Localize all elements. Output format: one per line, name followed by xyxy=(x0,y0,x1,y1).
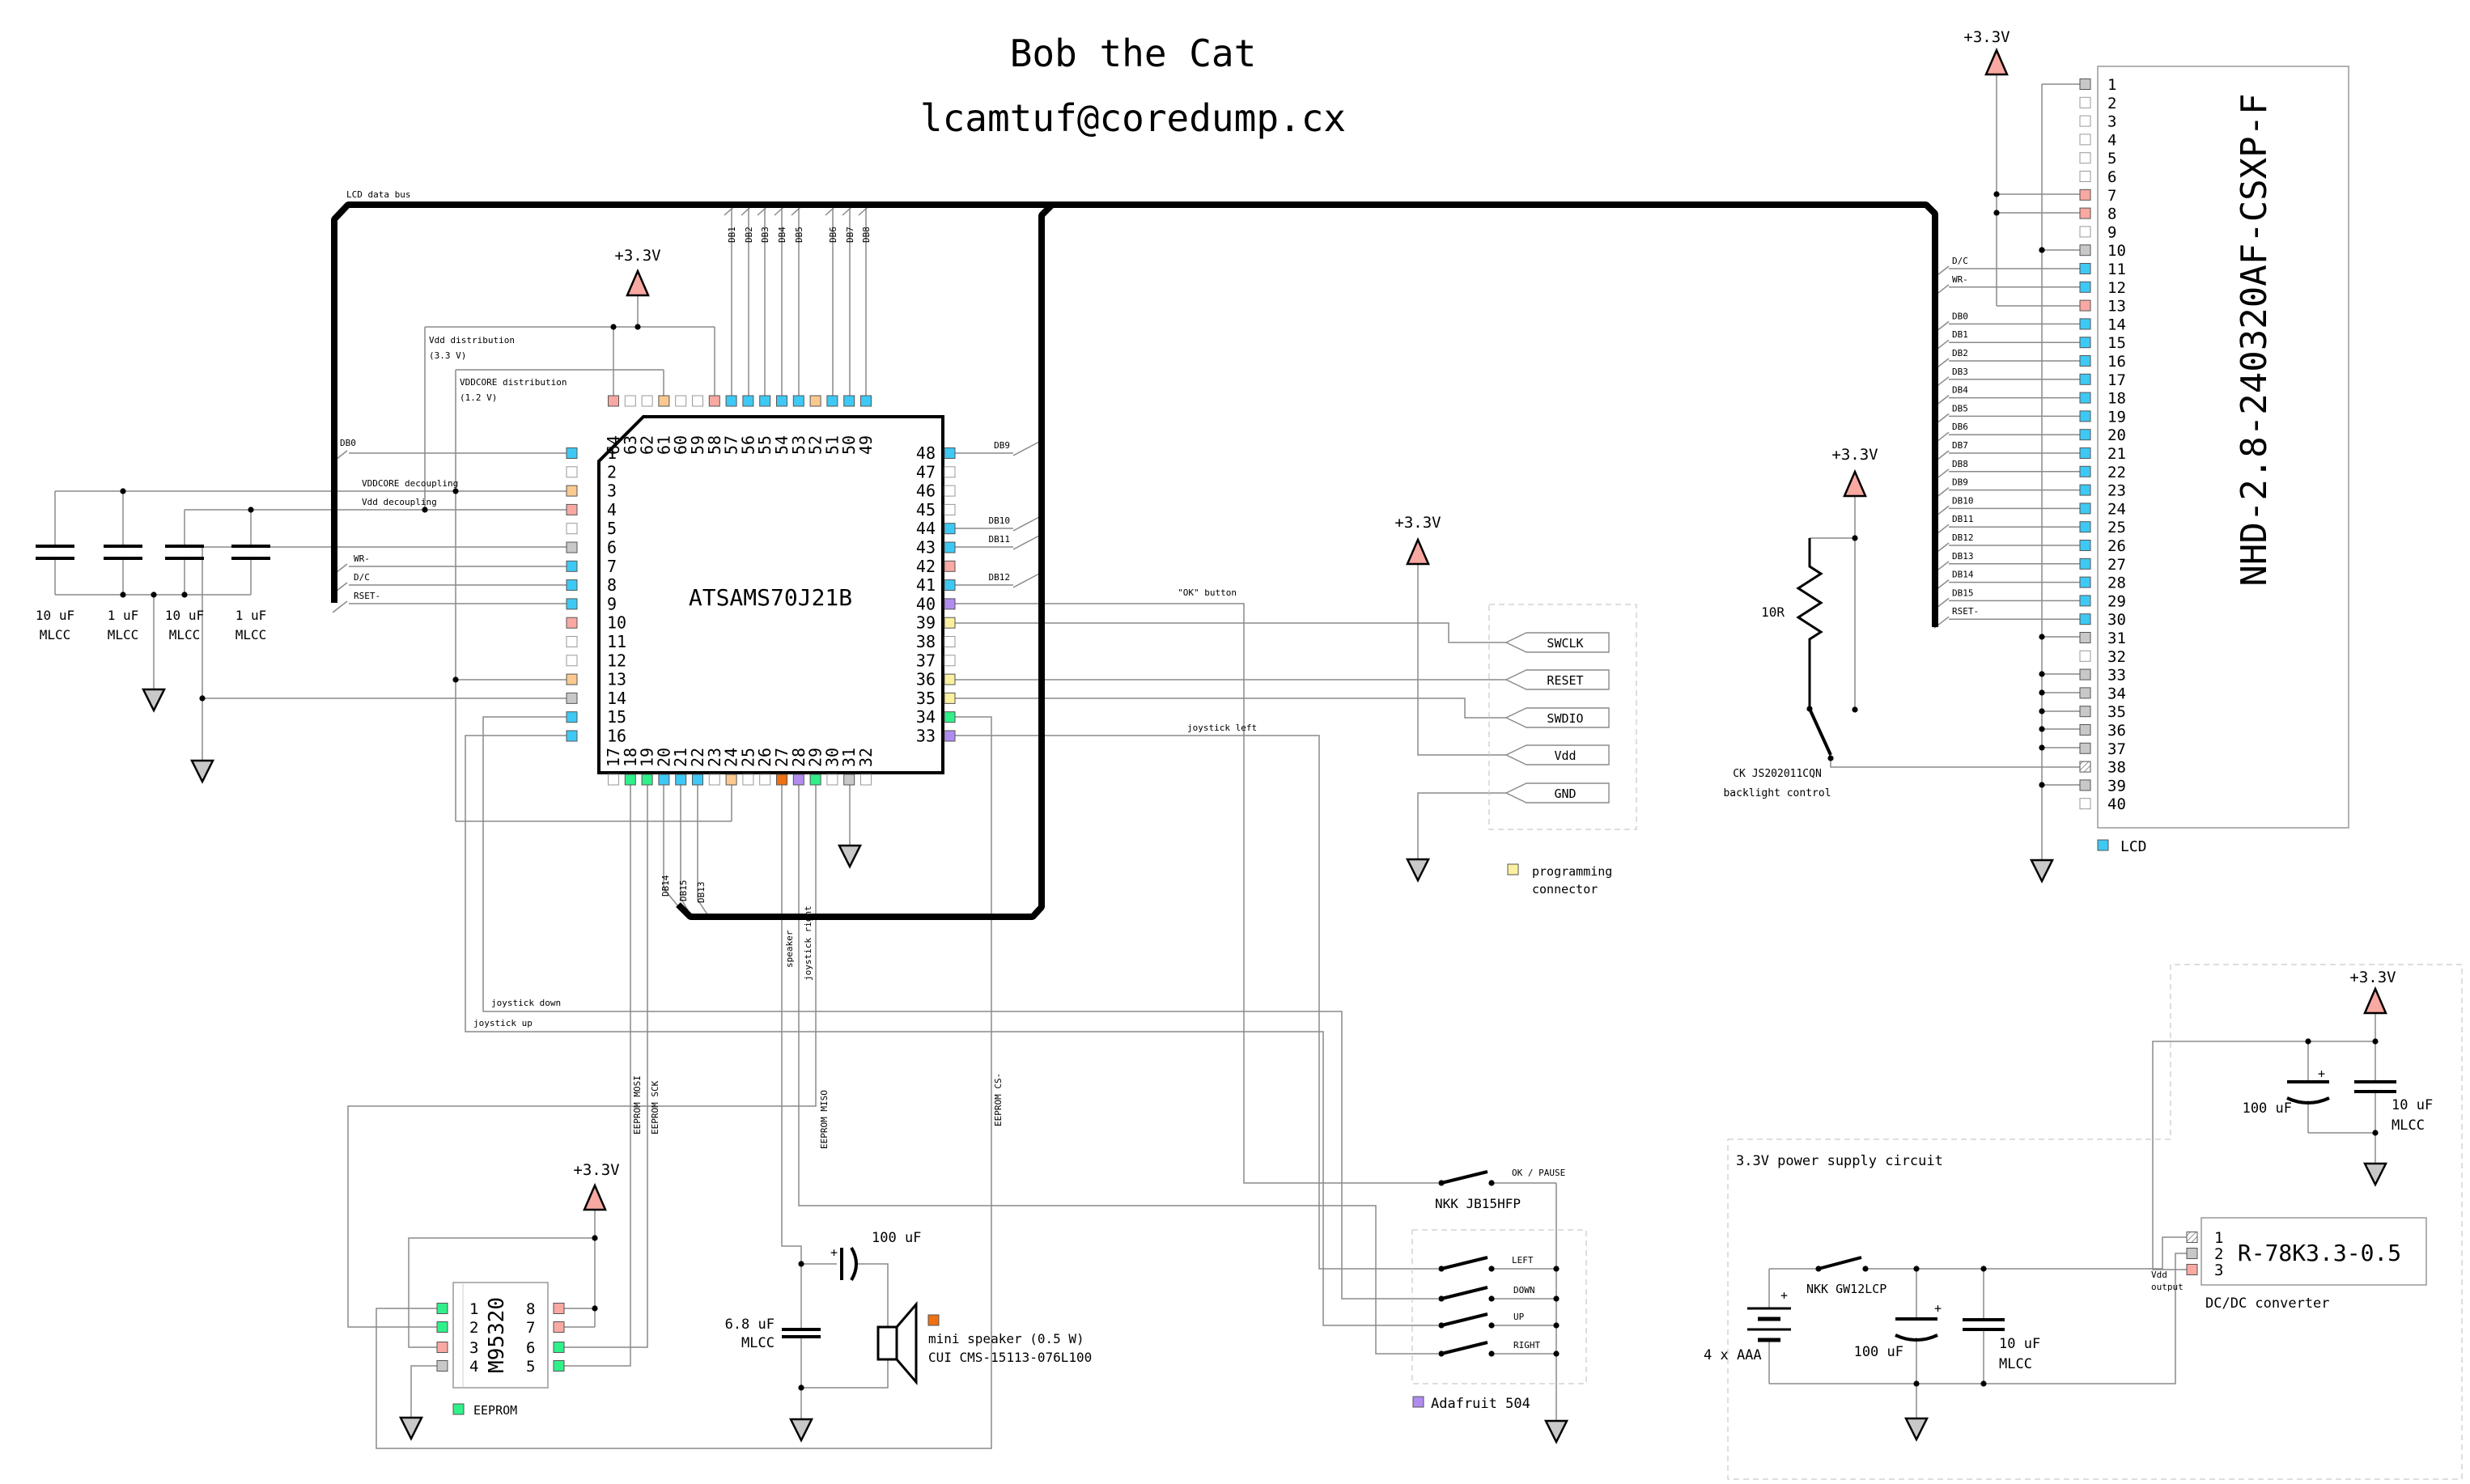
mcu-pin-49 xyxy=(861,396,872,406)
mcu-pin-8 xyxy=(567,580,577,591)
mcu-pin-50 xyxy=(844,396,855,406)
label: + xyxy=(1780,1288,1788,1303)
lcd-pin-number: 32 xyxy=(2107,648,2126,666)
lcd-pin-14 xyxy=(2080,319,2090,329)
db-label: DB12 xyxy=(989,572,1011,583)
lcd-signal-label: DB11 xyxy=(1952,514,1974,524)
label: EEPROM CS- xyxy=(993,1073,1004,1126)
junction-dot xyxy=(2039,744,2044,750)
lcd-signal-label: DB2 xyxy=(1952,348,1968,358)
joystick-legend-swatch xyxy=(1413,1397,1424,1407)
switch-blade xyxy=(1441,1287,1488,1299)
mcu-pin-number: 37 xyxy=(916,651,936,670)
lcd-pin-number: 19 xyxy=(2107,408,2126,426)
db-label: DB3 xyxy=(760,227,770,243)
lcd-pin-number: 17 xyxy=(2107,371,2126,389)
junction-dot xyxy=(634,324,640,329)
junction-dot xyxy=(1913,1380,1919,1386)
lcd-pin-number: 14 xyxy=(2107,316,2126,333)
schematic-page: D/CWR-DB0DB1DB2DB3DB4DB5DB6DB7DB8DB9DB10… xyxy=(0,0,2470,1484)
wire xyxy=(1865,1237,2187,1269)
label: 100 uF xyxy=(1854,1344,1903,1360)
label: RIGHT xyxy=(1513,1340,1540,1350)
ground-icon xyxy=(839,846,860,867)
junction-dot xyxy=(1553,1322,1559,1328)
junction-dot xyxy=(2372,1038,2378,1044)
lcd-pin-number: 26 xyxy=(2107,537,2126,555)
mcu-pin-number: 33 xyxy=(916,727,936,746)
junction-dot xyxy=(610,324,616,329)
lcd-pin-29 xyxy=(2080,596,2090,606)
label: speaker xyxy=(784,930,795,968)
lcd-pin-number: 24 xyxy=(2107,500,2126,518)
dcdc-pin-number: 2 xyxy=(2214,1245,2223,1263)
mcu-pin-57 xyxy=(726,396,736,406)
label: (1.2 V) xyxy=(460,392,497,403)
mcu-pin-number: 8 xyxy=(607,575,617,595)
junction-dot xyxy=(2039,708,2044,714)
lcd-pin-number: 35 xyxy=(2107,703,2126,721)
lcd-pin-number: 8 xyxy=(2107,206,2116,223)
mcu-pin-11 xyxy=(567,637,577,647)
lcd-pin-27 xyxy=(2080,558,2090,569)
power-3v3-icon xyxy=(1986,50,2007,74)
junction-dot xyxy=(592,1305,597,1311)
capacitor-plate-curved xyxy=(851,1248,856,1280)
mcu-pin-number: 14 xyxy=(607,689,626,708)
label: "OK" button xyxy=(1178,587,1237,598)
bus-tap-slash xyxy=(1013,517,1039,531)
cap-label: MLCC xyxy=(40,627,71,642)
mcu-pin-63 xyxy=(625,396,635,406)
lcd-pin-number: 6 xyxy=(2107,168,2116,186)
junction-dot xyxy=(1993,210,1999,215)
label: + xyxy=(830,1245,838,1260)
lcd-pin-number: 13 xyxy=(2107,298,2126,316)
label: 10 uF xyxy=(2391,1097,2433,1113)
lcd-pin-number: 22 xyxy=(2107,464,2126,481)
junction-dot xyxy=(1852,706,1857,712)
mcu-pin-10 xyxy=(567,617,577,628)
mcu-pin-number: 12 xyxy=(607,651,626,670)
lcd-signal-label: DB14 xyxy=(1952,570,1974,580)
lcd-pin-number: 27 xyxy=(2107,556,2126,574)
mcu-pin-46 xyxy=(944,485,955,496)
mcu-pin-26 xyxy=(760,774,770,785)
lcd-pin-18 xyxy=(2080,392,2090,403)
cap-label: 10 uF xyxy=(36,608,74,623)
bus-tap-slash xyxy=(1013,574,1039,587)
mcu-pin-30 xyxy=(827,774,838,785)
eeprom-pin-number: 6 xyxy=(526,1339,535,1357)
db-label: DB13 xyxy=(696,882,707,904)
switch-blade xyxy=(1819,1257,1861,1269)
label: Vdd decoupling xyxy=(362,497,437,507)
speaker-icon xyxy=(878,1327,897,1359)
lcd-pin-6 xyxy=(2080,172,2090,182)
wire xyxy=(564,785,647,1347)
power-3v3-label: +3.3V xyxy=(1394,514,1441,532)
lcd-pin-number: 20 xyxy=(2107,426,2126,444)
mcu-pin-number: 48 xyxy=(916,443,936,463)
eeprom-pin-number: 3 xyxy=(469,1339,478,1357)
label: + xyxy=(1934,1301,1942,1316)
lcd-pin-11 xyxy=(2080,264,2090,274)
speaker-legend-swatch xyxy=(928,1315,939,1325)
lcd-pin-number: 3 xyxy=(2107,113,2116,131)
power-3v3-label: +3.3V xyxy=(614,247,660,265)
mcu-pin-number: 36 xyxy=(916,670,936,689)
mcu-pin-33 xyxy=(944,731,955,741)
lcd-pin-28 xyxy=(2080,577,2090,587)
mcu-pin-18 xyxy=(625,774,635,785)
flag-label: SWDIO xyxy=(1547,711,1583,726)
power-3v3-label: +3.3V xyxy=(1831,446,1878,464)
lcd-pin-37 xyxy=(2080,743,2090,753)
junction-dot xyxy=(1827,755,1833,761)
label: Vdd distribution xyxy=(429,335,515,346)
mcu-pin-number: 42 xyxy=(916,557,936,576)
wire xyxy=(955,604,1438,1183)
mcu-pin-32 xyxy=(861,774,872,785)
lcd-pin-1 xyxy=(2080,79,2090,90)
wire xyxy=(855,1264,888,1327)
mcu-pin-45 xyxy=(944,504,955,515)
lcd-pin-number: 15 xyxy=(2107,334,2126,352)
eeprom-pin-number: 7 xyxy=(526,1319,535,1337)
lcd-pin-number: 23 xyxy=(2107,482,2126,500)
db-label: DB11 xyxy=(989,534,1011,545)
mcu-pin-37 xyxy=(944,655,955,666)
junction-dot xyxy=(1488,1322,1494,1328)
mcu-pin-62 xyxy=(642,396,652,406)
label: mini speaker (0.5 W) xyxy=(928,1331,1084,1346)
mcu-pin-23 xyxy=(709,774,719,785)
wire xyxy=(1831,758,2080,767)
power-3v3-icon xyxy=(1844,472,1865,496)
lcd-signal-label: DB1 xyxy=(1952,329,1968,340)
label: MLCC xyxy=(2391,1117,2425,1134)
lcd-pin-33 xyxy=(2080,669,2090,680)
programming-legend-label: connector xyxy=(1532,882,1598,897)
mcu-pin-24 xyxy=(726,774,736,785)
ground-icon xyxy=(192,761,213,782)
label: NKK JB15HFP xyxy=(1435,1196,1521,1211)
lcd-pin-4 xyxy=(2080,134,2090,145)
eeprom-pin-number: 1 xyxy=(469,1300,478,1318)
junction-dot xyxy=(2039,726,2044,731)
mcu-pin-41 xyxy=(944,580,955,591)
mcu-name: ATSAMS70J21B xyxy=(689,584,852,611)
label: joystick down xyxy=(491,998,561,1008)
mcu-pin-34 xyxy=(944,712,955,723)
lcd-pin-number: 18 xyxy=(2107,390,2126,408)
mcu-pin-number: 39 xyxy=(916,613,936,633)
lcd-pin-17 xyxy=(2080,374,2090,384)
mcu-pin-number: 2 xyxy=(607,462,617,481)
label: MLCC xyxy=(741,1335,775,1351)
label: UP xyxy=(1513,1312,1525,1322)
cap-label: 10 uF xyxy=(165,608,204,623)
lcd-data-bus-label: LCD data bus xyxy=(346,189,410,200)
flag-label: RESET xyxy=(1547,673,1583,688)
power-3v3-icon xyxy=(627,271,648,295)
db-label: DB9 xyxy=(994,440,1010,451)
label: backlight control xyxy=(1723,787,1831,799)
label: VDDCORE distribution xyxy=(460,377,567,388)
lcd-pin-number: 38 xyxy=(2107,759,2126,777)
db-label: DB6 xyxy=(828,227,838,243)
mcu-pin-5 xyxy=(567,524,577,534)
lcd-pin-24 xyxy=(2080,503,2090,514)
lcd-pin-32 xyxy=(2080,651,2090,661)
lcd-pin-number: 7 xyxy=(2107,187,2116,205)
mcu-pin-36 xyxy=(944,674,955,685)
mcu-pin-number: 43 xyxy=(916,538,936,558)
junction-dot xyxy=(1438,1266,1444,1271)
switch-blade xyxy=(1810,709,1831,755)
junction-dot xyxy=(120,488,125,494)
lcd-pin-number: 4 xyxy=(2107,131,2116,149)
label: OK / PAUSE xyxy=(1512,1168,1565,1178)
junction-dot xyxy=(1815,1266,1821,1271)
lcd-signal-label: DB13 xyxy=(1952,551,1974,562)
wire xyxy=(411,1366,437,1418)
junction-dot xyxy=(2039,689,2044,695)
lcd-signal-label: DB3 xyxy=(1952,367,1968,377)
mcu-pin-number: 5 xyxy=(607,519,617,538)
lcd-signal-label: DB15 xyxy=(1952,587,1974,598)
joystick-box xyxy=(1412,1230,1586,1384)
lcd-pin-number: 1 xyxy=(2107,76,2116,94)
switch-blade xyxy=(1441,1257,1488,1269)
lcd-pin-34 xyxy=(2080,688,2090,698)
mcu-pin-number: 4 xyxy=(607,500,617,519)
eeprom-legend-label: EEPROM xyxy=(473,1403,517,1418)
eeprom-pin-number: 8 xyxy=(526,1300,535,1318)
mcu-pin-48 xyxy=(944,448,955,459)
junction-dot xyxy=(2305,1038,2311,1044)
mcu-pin-29 xyxy=(810,774,821,785)
lcd-pin-9 xyxy=(2080,227,2090,237)
junction-dot xyxy=(2039,671,2044,676)
mcu-pin-16 xyxy=(567,731,577,741)
lcd-pin-20 xyxy=(2080,430,2090,440)
power-3v3-label: +3.3V xyxy=(573,1161,619,1179)
mcu-pin-17 xyxy=(609,774,619,785)
lcd-pin-5 xyxy=(2080,153,2090,163)
ground-icon xyxy=(1407,859,1428,880)
lcd-pin-2 xyxy=(2080,97,2090,108)
mcu-pin-number: 16 xyxy=(607,727,626,746)
wire xyxy=(801,1359,888,1388)
cap-label: MLCC xyxy=(108,627,139,642)
mcu-pin-27 xyxy=(777,774,787,785)
junction-dot xyxy=(1488,1350,1494,1356)
mcu-pin-number: 15 xyxy=(607,707,626,727)
junction-dot xyxy=(199,695,205,701)
lcd-pin-23 xyxy=(2080,485,2090,495)
junction-dot xyxy=(1488,1266,1494,1271)
mcu-pin-number: 3 xyxy=(607,481,617,501)
label: VDDCORE decoupling xyxy=(362,478,458,489)
flag-label: Vdd xyxy=(1554,748,1576,763)
mcu-pin-13 xyxy=(567,674,577,685)
switch-blade xyxy=(1441,1342,1488,1354)
lcd-pin-number: 5 xyxy=(2107,150,2116,167)
lcd-pin-7 xyxy=(2080,189,2090,200)
lcd-signal-label: DB0 xyxy=(1952,311,1968,321)
junction-dot xyxy=(2039,247,2044,252)
db-label: DB5 xyxy=(794,227,804,243)
eeprom-pin-6 xyxy=(554,1342,564,1353)
mcu-pin-54 xyxy=(777,396,787,406)
wire xyxy=(564,785,630,1366)
cap-label: 1 uF xyxy=(108,608,139,623)
mcu-pin-7 xyxy=(567,561,577,571)
ground-icon xyxy=(2031,860,2052,881)
page-subtitle: lcamtuf@coredump.cx xyxy=(920,96,1346,140)
mcu-pin-12 xyxy=(567,655,577,666)
speaker-icon xyxy=(897,1304,916,1382)
db-label: DB14 xyxy=(660,875,671,897)
lcd-pin-number: 9 xyxy=(2107,223,2116,241)
junction-dot xyxy=(1980,1266,1986,1271)
wire xyxy=(1418,564,1506,755)
bus-signal-label: RSET- xyxy=(354,591,380,601)
mcu-pin-15 xyxy=(567,712,577,723)
junction-dot xyxy=(1438,1295,1444,1301)
lcd-pin-39 xyxy=(2080,780,2090,791)
db-label: DB7 xyxy=(845,227,855,243)
eeprom-pin-number: 2 xyxy=(469,1319,478,1337)
lcd-pin-number: 16 xyxy=(2107,353,2126,371)
lcd-pin-number: 33 xyxy=(2107,667,2126,685)
mcu-pin-number: 40 xyxy=(916,594,936,613)
lcd-pin-15 xyxy=(2080,337,2090,348)
junction-dot xyxy=(2039,634,2044,639)
lcd-pin-number: 30 xyxy=(2107,611,2126,629)
eeprom-pin-4 xyxy=(437,1361,448,1372)
junction-dot xyxy=(1806,706,1812,711)
mcu-pin-64 xyxy=(609,396,619,406)
cap-label: MLCC xyxy=(169,627,201,642)
mcu-pin-31 xyxy=(844,774,855,785)
mcu-pin-38 xyxy=(944,637,955,647)
mcu-pin-number: 44 xyxy=(916,519,936,538)
eeprom-pin-8 xyxy=(554,1304,564,1314)
junction-dot xyxy=(2372,1130,2378,1135)
wire xyxy=(955,736,1438,1269)
mcu-pin-number: 46 xyxy=(916,481,936,501)
wire xyxy=(955,623,1506,642)
mcu-pin-number: 45 xyxy=(916,500,936,519)
mcu-pin-55 xyxy=(760,396,770,406)
mcu-pin-25 xyxy=(743,774,753,785)
lcd-name: NHD-2.8-240320AF-CSXP-F xyxy=(2234,93,2275,586)
mcu-pin-39 xyxy=(944,617,955,628)
ground-icon xyxy=(791,1419,812,1440)
lcd-pin-12 xyxy=(2080,282,2090,292)
lcd-pin-number: 12 xyxy=(2107,279,2126,297)
dcdc-pin-3 xyxy=(2187,1265,2197,1275)
junction-dot xyxy=(1913,1266,1919,1271)
label: CUI CMS-15113-076L100 xyxy=(928,1350,1092,1365)
mcu-pin-53 xyxy=(793,396,804,406)
mcu-pin-35 xyxy=(944,693,955,703)
wire xyxy=(348,785,816,1327)
label: 100 uF xyxy=(872,1230,921,1246)
bus-tap-slash xyxy=(1013,442,1039,456)
eeprom-pin-number: 5 xyxy=(526,1358,535,1376)
junction-dot xyxy=(1862,1266,1868,1271)
junction-dot xyxy=(1553,1295,1559,1301)
label: + xyxy=(2318,1066,2325,1081)
lcd-pin-number: 40 xyxy=(2107,795,2126,813)
bus-signal-label: WR- xyxy=(354,553,370,564)
lcd-pin-number: 28 xyxy=(2107,575,2126,592)
power-3v3-icon xyxy=(1407,540,1428,564)
mcu-pin-number: 10 xyxy=(607,613,626,633)
mcu-pin-3 xyxy=(567,485,577,496)
mcu-pin-number: 34 xyxy=(916,707,936,727)
mcu-pin-60 xyxy=(676,396,686,406)
wire xyxy=(955,698,1506,718)
mcu-pin-number: 49 xyxy=(856,435,876,455)
label: MLCC xyxy=(1999,1356,2032,1372)
lcd-pin-number: 25 xyxy=(2107,519,2126,536)
lcd-signal-label: DB8 xyxy=(1952,459,1968,469)
junction-dot xyxy=(2039,782,2044,787)
ground-icon xyxy=(143,689,164,710)
ground-icon xyxy=(401,1418,422,1439)
junction-dot xyxy=(1488,1180,1494,1185)
lcd-pin-26 xyxy=(2080,541,2090,551)
lcd-signal-label: DB4 xyxy=(1952,385,1968,396)
eeprom-name: M95320 xyxy=(485,1297,509,1373)
junction-dot xyxy=(1553,1266,1559,1271)
junction-dot xyxy=(592,1235,597,1240)
lcd-signal-label: DB6 xyxy=(1952,422,1968,432)
eeprom-pin-5 xyxy=(554,1361,564,1372)
mcu-pin-19 xyxy=(642,774,652,785)
junction-dot xyxy=(798,1384,804,1390)
junction-dot xyxy=(1852,535,1857,541)
eeprom-pin-7 xyxy=(554,1322,564,1333)
mcu-pin-61 xyxy=(659,396,669,406)
wire xyxy=(465,736,1438,1325)
junction-dot xyxy=(422,507,427,512)
lcd-signal-label: WR- xyxy=(1952,274,1968,285)
lcd-signal-label: DB5 xyxy=(1952,403,1968,413)
flag-label: SWCLK xyxy=(1547,636,1583,651)
label: joystick left xyxy=(1187,723,1257,733)
power-3v3-icon xyxy=(584,1185,605,1210)
wire xyxy=(1418,793,1506,859)
bus-tap-slash xyxy=(333,601,347,613)
mcu-pin-1 xyxy=(567,448,577,459)
eeprom-pin-number: 4 xyxy=(469,1358,478,1376)
lcd-pin-22 xyxy=(2080,466,2090,477)
lcd-pin-number: 31 xyxy=(2107,630,2126,647)
lcd-pin-16 xyxy=(2080,356,2090,367)
lcd-pin-number: 37 xyxy=(2107,740,2126,758)
mcu-pin-43 xyxy=(944,542,955,553)
ground-icon xyxy=(1546,1421,1567,1442)
dcdc-pin-1 xyxy=(2187,1232,2197,1243)
mcu-pin-58 xyxy=(709,396,719,406)
schematic-canvas: D/CWR-DB0DB1DB2DB3DB4DB5DB6DB7DB8DB9DB10… xyxy=(0,0,2470,1484)
